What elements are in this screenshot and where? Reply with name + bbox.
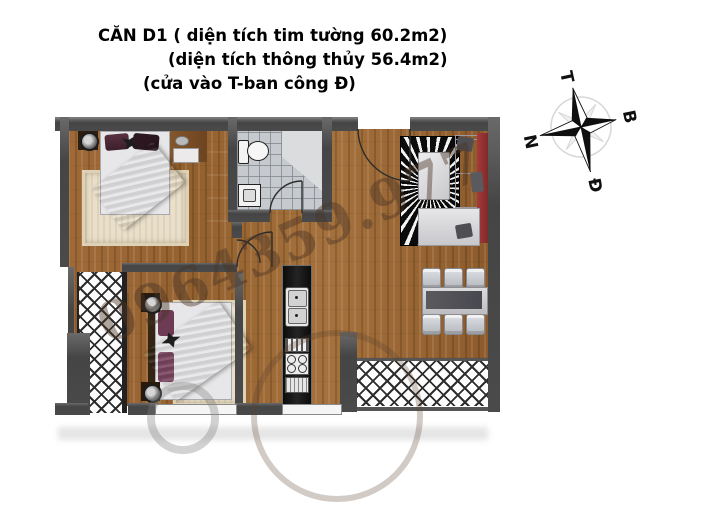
watermark-ring-large (251, 330, 423, 502)
plan-title-line2: (diện tích thông thủy 56.4m2) (168, 50, 448, 69)
compass-rose-icon: T B N Đ (516, 55, 646, 205)
compass-label-north: B (618, 108, 640, 125)
compass-label-east: Đ (583, 176, 606, 194)
plan-title-line1: CĂN D1 ( diện tích tim tường 60.2m2) (98, 26, 447, 45)
floor-plan-page: CĂN D1 ( diện tích tim tường 60.2m2) (di… (0, 0, 722, 510)
compass-label-west: T (555, 69, 577, 85)
watermark-ring-small (147, 382, 219, 454)
plan-title-line3: (cửa vào T-ban công Đ) (143, 74, 356, 93)
compass-label-south: N (519, 133, 542, 151)
